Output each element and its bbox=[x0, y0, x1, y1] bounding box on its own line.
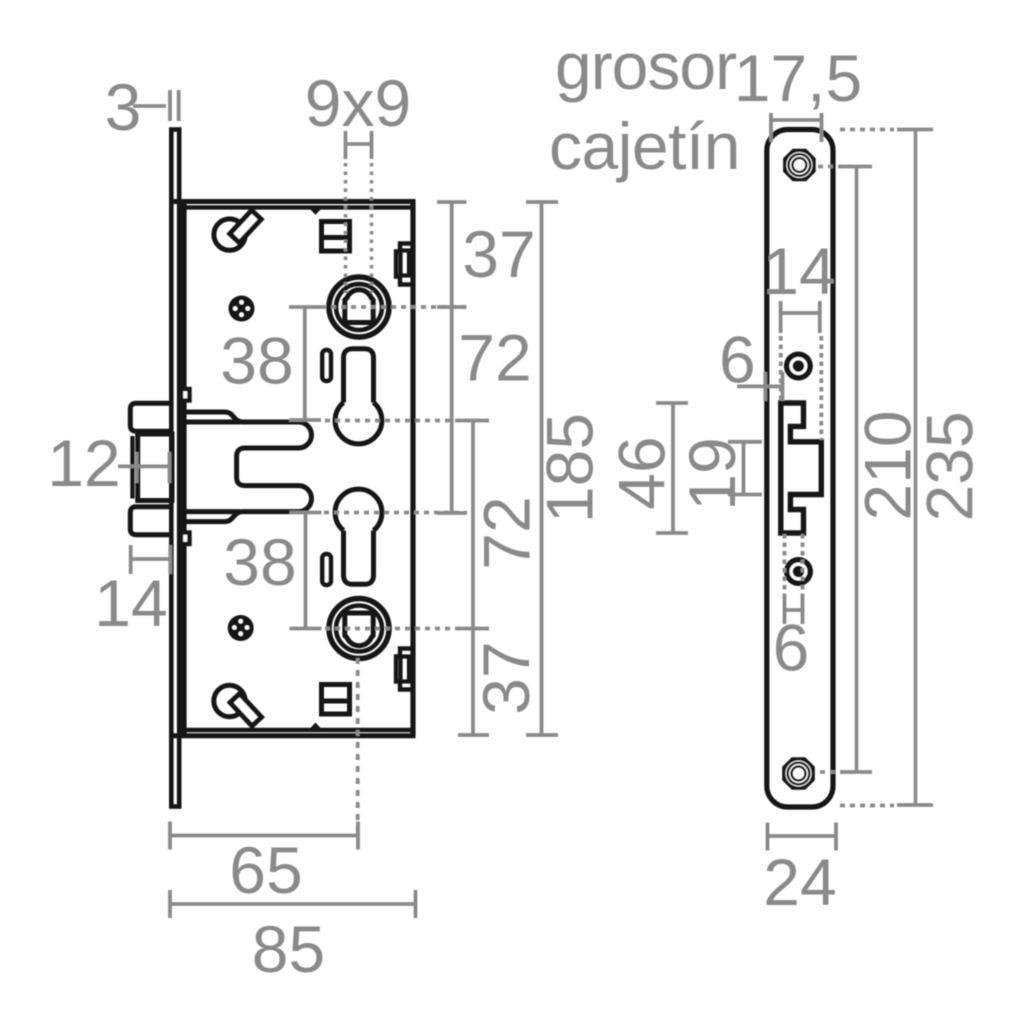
svg-text:3: 3 bbox=[105, 70, 142, 144]
svg-text:6: 6 bbox=[719, 323, 756, 397]
svg-text:6: 6 bbox=[773, 611, 810, 685]
svg-text:72: 72 bbox=[458, 321, 531, 395]
svg-text:cajetín: cajetín bbox=[549, 109, 740, 183]
svg-text:65: 65 bbox=[229, 833, 302, 907]
svg-text:37: 37 bbox=[469, 641, 543, 714]
svg-text:19: 19 bbox=[675, 437, 749, 510]
svg-text:185: 185 bbox=[533, 413, 607, 523]
svg-text:38: 38 bbox=[220, 324, 293, 398]
svg-text:9x9: 9x9 bbox=[305, 66, 411, 140]
svg-text:24: 24 bbox=[763, 845, 836, 919]
svg-text:46: 46 bbox=[605, 436, 679, 509]
svg-text:85: 85 bbox=[252, 912, 325, 986]
svg-text:17,5: 17,5 bbox=[734, 41, 862, 115]
svg-text:235: 235 bbox=[912, 411, 986, 521]
svg-text:37: 37 bbox=[462, 217, 535, 291]
svg-text:14: 14 bbox=[762, 234, 835, 308]
svg-text:12: 12 bbox=[47, 426, 120, 500]
svg-text:38: 38 bbox=[223, 525, 296, 599]
svg-text:14: 14 bbox=[94, 566, 167, 640]
svg-text:grosor: grosor bbox=[555, 29, 736, 103]
